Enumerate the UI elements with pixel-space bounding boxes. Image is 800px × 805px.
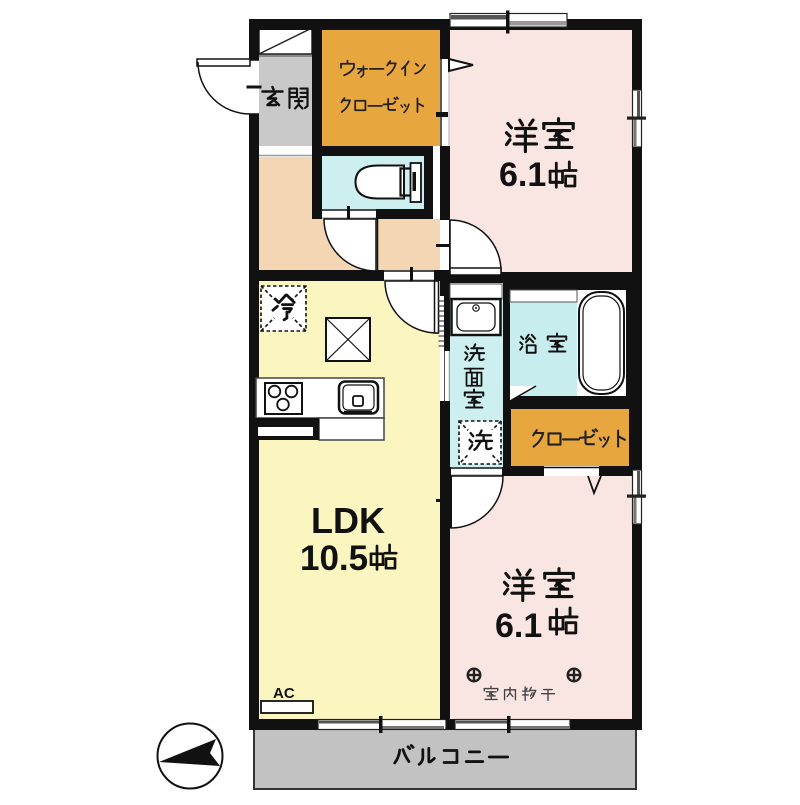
svg-text:6.1: 6.1	[499, 156, 546, 194]
svg-text:AC: AC	[273, 685, 295, 702]
svg-text:10.5: 10.5	[300, 539, 368, 578]
svg-text:6.1: 6.1	[495, 607, 542, 645]
svg-text:LDK: LDK	[311, 500, 385, 541]
